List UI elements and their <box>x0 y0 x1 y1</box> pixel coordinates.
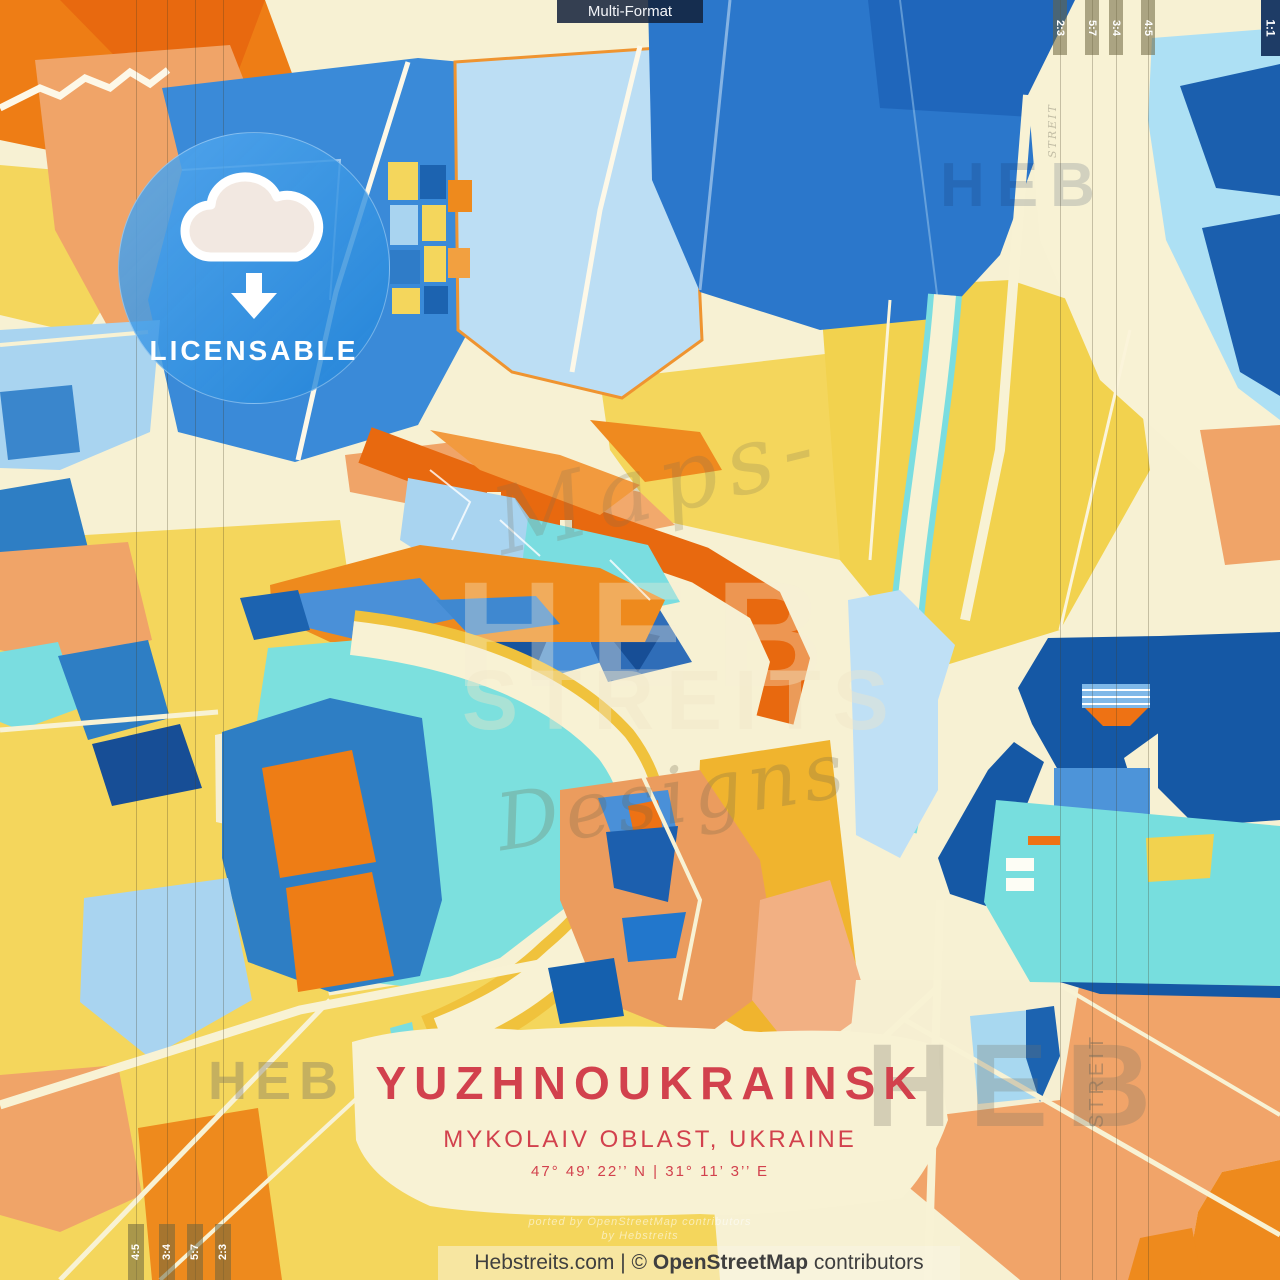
aspect-ratio-label: 3:4 <box>161 1244 173 1260</box>
aspect-ratio-tab-2-3: 2:3 <box>1053 0 1067 55</box>
title-block: YUZHNOUKRAINSK MYKOLAIV OBLAST, UKRAINE … <box>240 1056 1060 1180</box>
footer-text: Hebstreits.com | © OpenStreetMap contrib… <box>474 1251 923 1275</box>
licensable-label: LICENSABLE <box>150 335 359 367</box>
crop-line <box>1148 0 1149 1280</box>
map-coordinates: 47° 49’ 22’’ N | 31° 11’ 3’’ E <box>240 1163 1060 1180</box>
aspect-ratio-tab-3-4: 3:4 <box>1109 0 1123 55</box>
aspect-ratio-tab-5-7-bottom: 5:7 <box>187 1224 203 1280</box>
crop-line <box>1060 0 1061 1280</box>
aspect-ratio-label: 2:3 <box>217 1244 229 1260</box>
aspect-ratio-tab-5-7: 5:7 <box>1085 0 1099 55</box>
aspect-ratio-tab-4-5: 4:5 <box>1141 0 1155 55</box>
footer-contributors: contributors <box>814 1251 924 1274</box>
licensable-badge: LICENSABLE <box>118 132 390 404</box>
footer-osm: OpenStreetMap <box>653 1251 808 1274</box>
footer-copyright: © <box>632 1251 647 1274</box>
aspect-ratio-label: 1:1 <box>1264 19 1278 36</box>
aspect-ratio-label: 3:4 <box>1110 20 1122 36</box>
crop-line <box>1116 0 1117 1280</box>
aspect-ratio-tab-2-3-bottom: 2:3 <box>215 1224 231 1280</box>
crop-line <box>1092 0 1093 1280</box>
cloud-download-icon <box>159 161 349 321</box>
aspect-ratio-label: 5:7 <box>189 1244 201 1260</box>
aspect-ratio-tab-3-4-bottom: 3:4 <box>159 1224 175 1280</box>
aspect-ratio-label: 4:5 <box>130 1244 142 1260</box>
crop-line <box>136 0 137 1280</box>
aspect-ratio-tab-4-5-bottom: 4:5 <box>128 1224 144 1280</box>
aspect-ratio-label: 2:3 <box>1054 20 1066 36</box>
aspect-ratio-label: 4:5 <box>1142 20 1154 36</box>
footer-site: Hebstreits.com <box>474 1251 614 1274</box>
footer-bar: Hebstreits.com | © OpenStreetMap contrib… <box>438 1246 960 1280</box>
multi-format-label: Multi-Format <box>588 3 672 20</box>
multi-format-banner: Multi-Format <box>557 0 703 23</box>
map-subtitle: MYKOLAIV OBLAST, UKRAINE <box>240 1126 1060 1154</box>
aspect-ratio-label: 5:7 <box>1086 20 1098 36</box>
map-title: YUZHNOUKRAINSK <box>240 1056 1060 1110</box>
map-poster-preview: HEB STREIT Maps- HEB STREITS Designs HEB… <box>0 0 1280 1280</box>
footer-divider: | <box>620 1251 625 1274</box>
aspect-ratio-tab-1-1: 1:1 <box>1261 0 1280 56</box>
